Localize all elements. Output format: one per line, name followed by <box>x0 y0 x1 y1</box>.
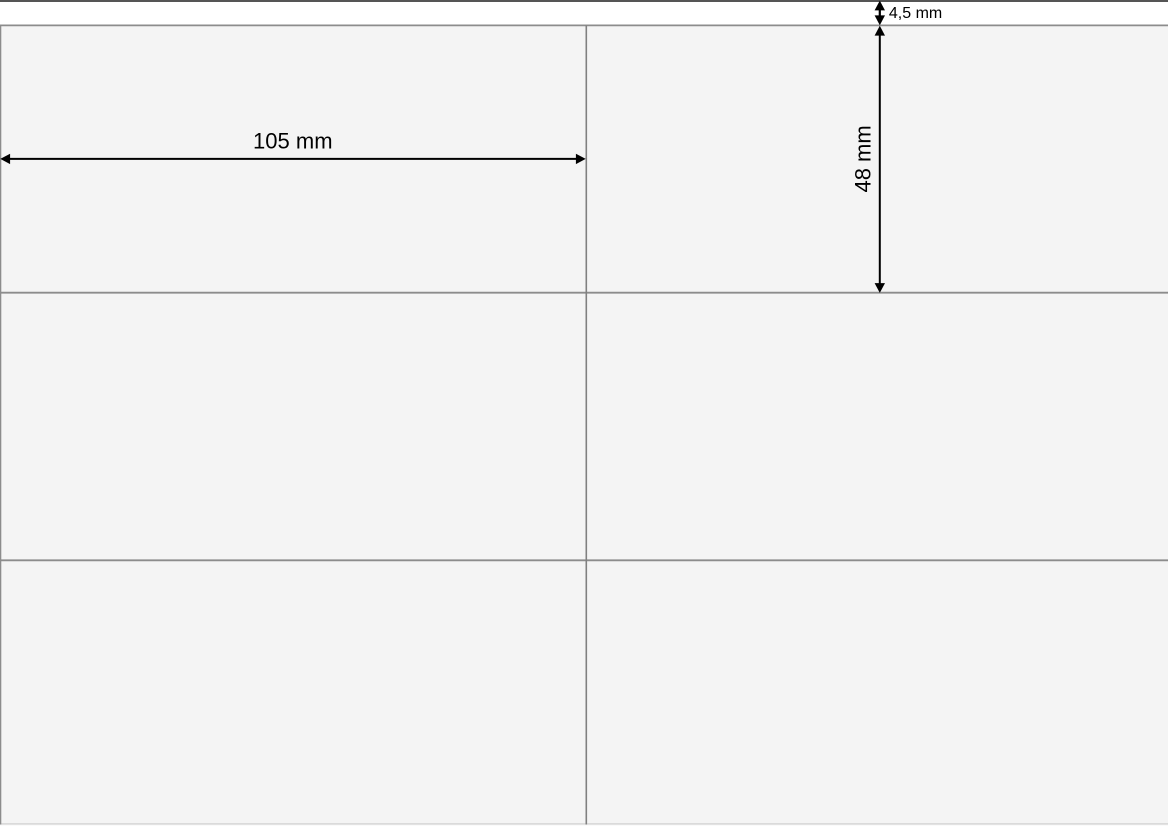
svg-text:105 mm: 105 mm <box>253 129 332 154</box>
svg-text:48 mm: 48 mm <box>850 125 875 192</box>
svg-text:4,5 mm: 4,5 mm <box>889 5 942 22</box>
